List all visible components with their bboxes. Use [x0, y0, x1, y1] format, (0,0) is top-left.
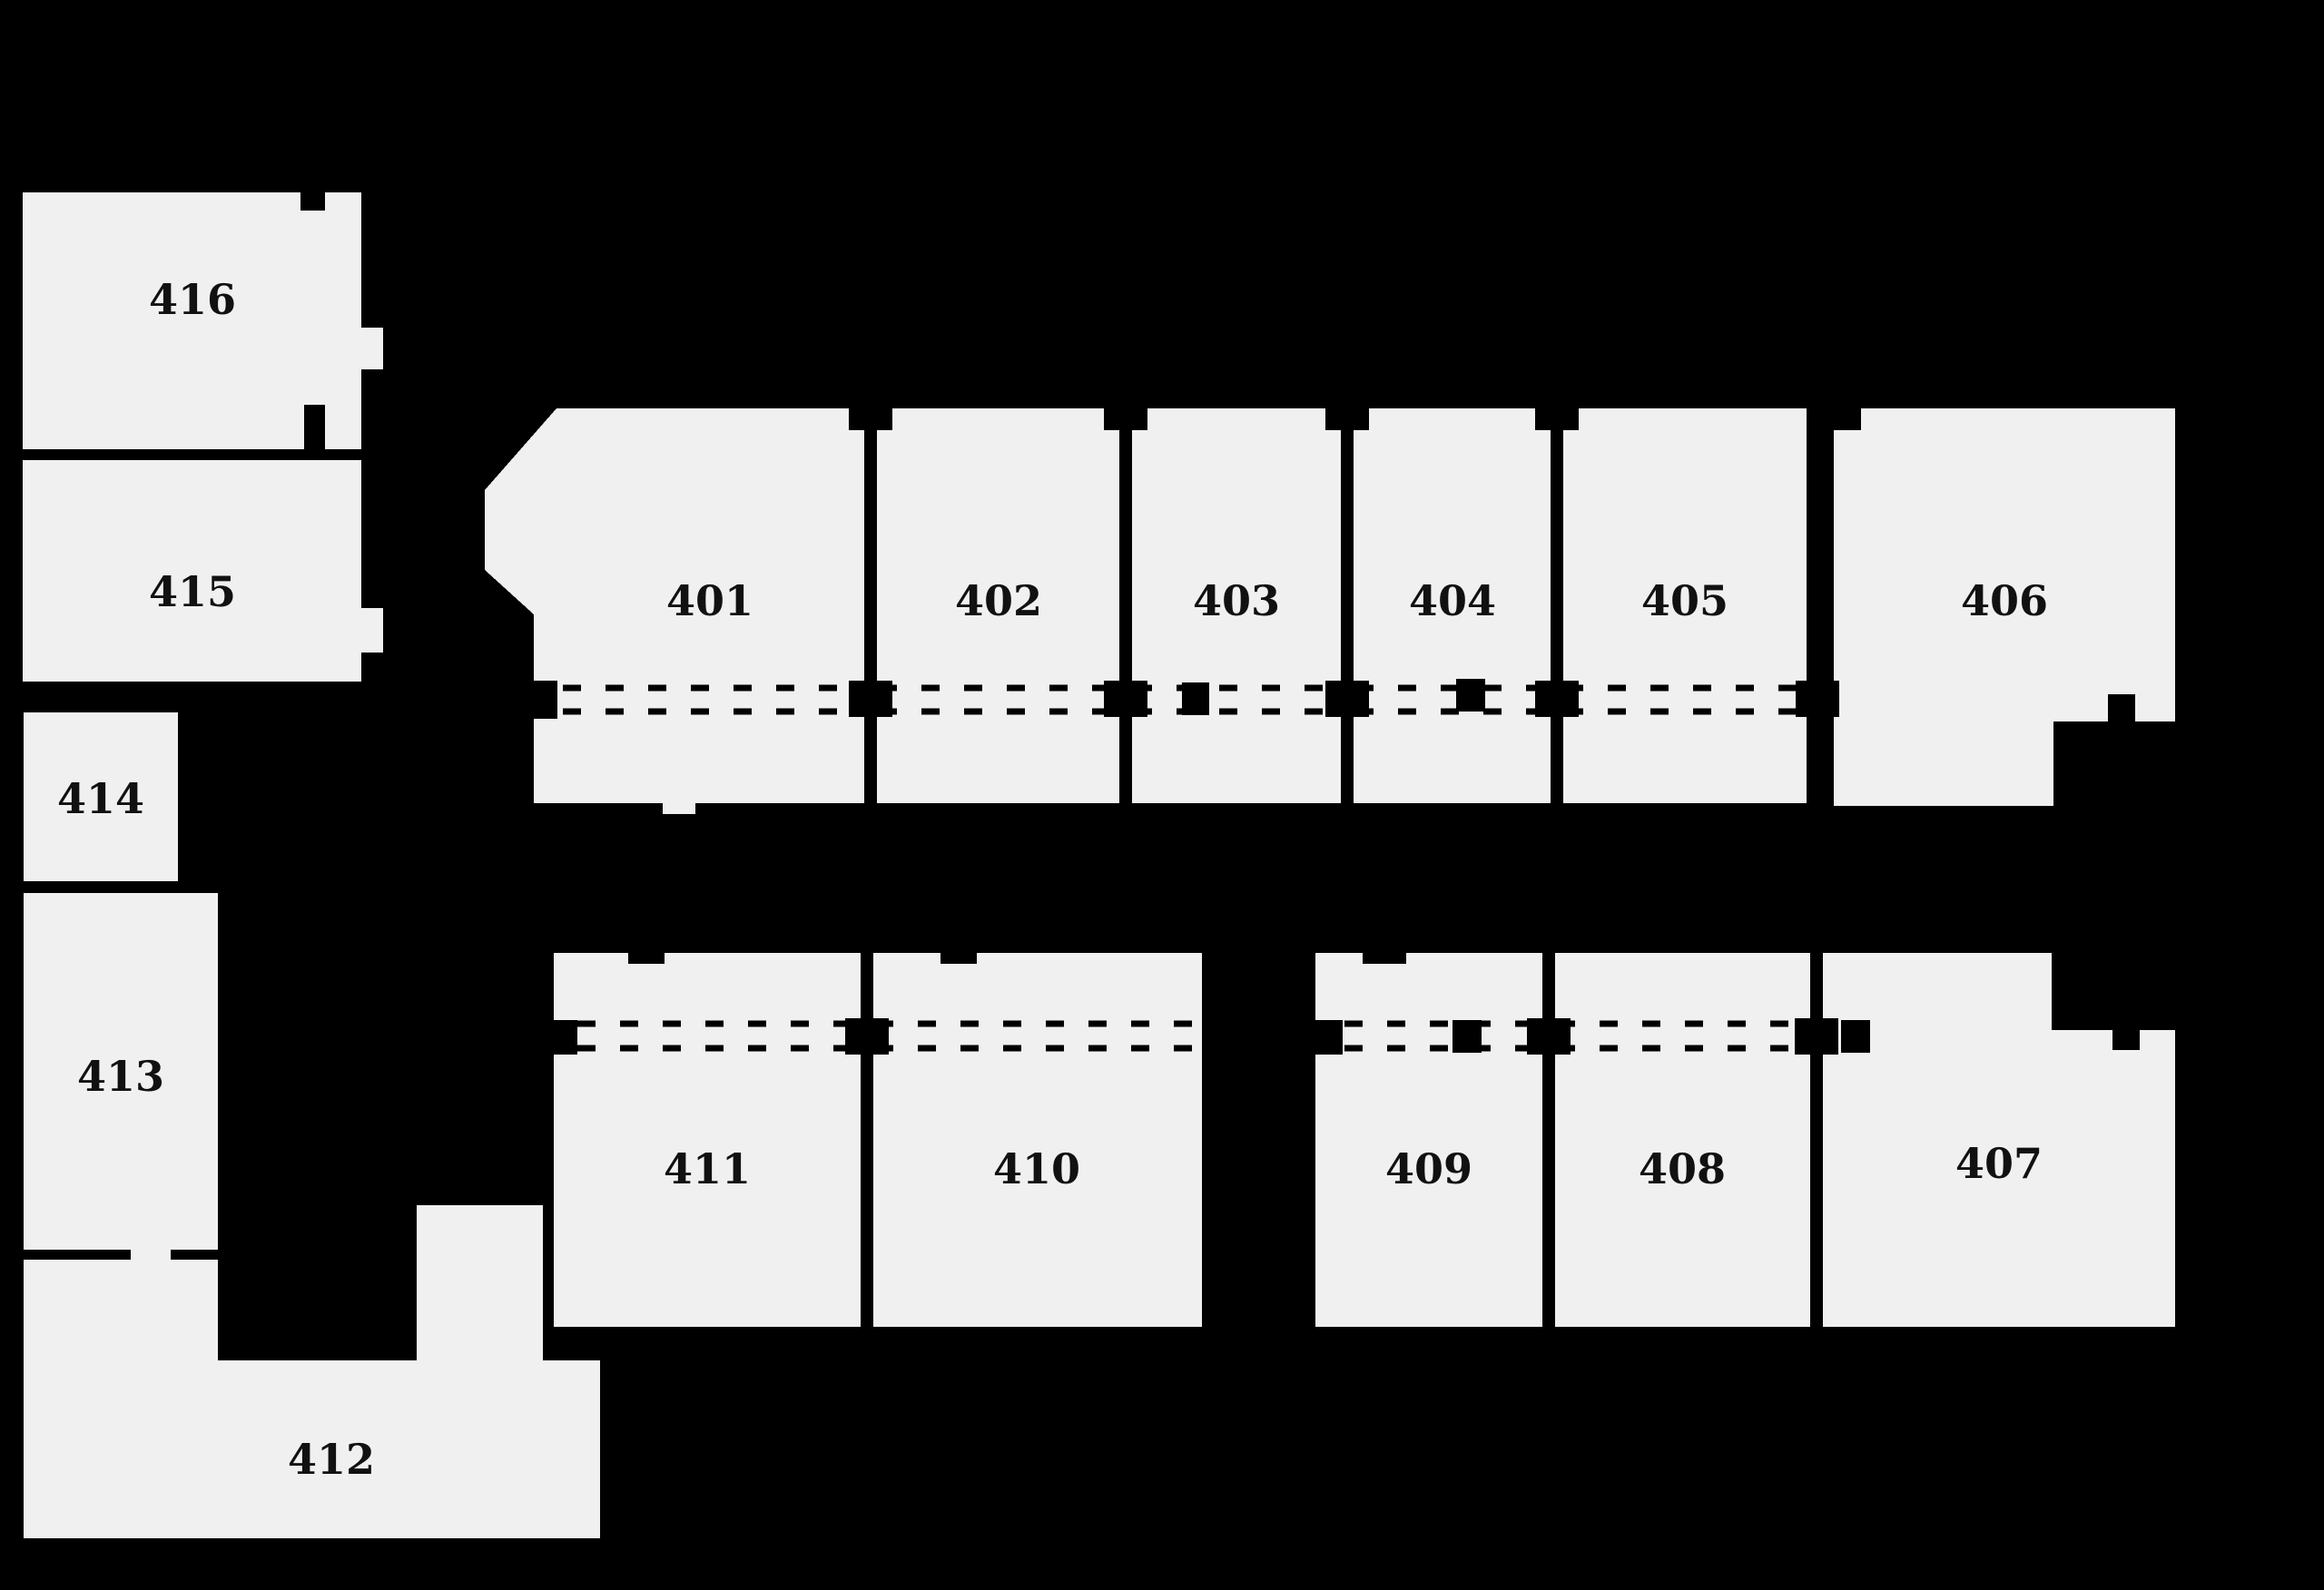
wall-stub: [940, 953, 977, 964]
room-415-label: 415: [149, 567, 236, 616]
wall-stub: [1795, 1018, 1838, 1055]
wall-stub: [554, 1020, 577, 1055]
room-405: 405: [1563, 408, 1807, 803]
room-401: 401: [485, 408, 864, 803]
room-402-label: 402: [955, 576, 1042, 625]
room-413-label: 413: [77, 1052, 164, 1101]
wall-stub: [1325, 407, 1369, 430]
room-415: 415: [23, 460, 361, 682]
room-403-label: 403: [1193, 576, 1280, 625]
wall-stub: [1315, 1020, 1343, 1055]
room-408: 408: [1555, 953, 1810, 1327]
wall-stub: [849, 681, 892, 717]
wall-stub: [628, 953, 665, 964]
wall-stub: [845, 1018, 889, 1055]
wall-stub: [1800, 1327, 1833, 1357]
room-402: 402: [877, 408, 1119, 803]
room-405-label: 405: [1641, 576, 1728, 625]
room-410-area[interactable]: [873, 953, 1202, 1327]
wall-stub: [1456, 679, 1485, 712]
wall-stub: [1535, 407, 1579, 430]
floor-plan: 4014024034044054064074084094104114124134…: [0, 0, 2324, 1590]
room-408-label: 408: [1639, 1144, 1726, 1193]
wall-stub: [2112, 1030, 2140, 1050]
room-416-label: 416: [149, 275, 236, 324]
wall-stub: [1104, 681, 1147, 717]
room-411: 411: [554, 953, 861, 1327]
wall-stub: [1796, 681, 1839, 717]
room-412-area[interactable]: [417, 1205, 543, 1538]
room-409: 409: [1315, 953, 1542, 1327]
door-opening: [131, 1249, 171, 1261]
wall-stub: [304, 405, 325, 449]
room-410-label: 410: [993, 1144, 1080, 1193]
wall-stub: [1535, 681, 1579, 717]
room-412-label: 412: [288, 1435, 375, 1484]
room-411-label: 411: [664, 1144, 751, 1193]
wall-stub: [1834, 408, 1861, 430]
wall-stub: [1527, 1018, 1571, 1055]
door-opening: [663, 803, 695, 814]
room-408-area[interactable]: [1555, 953, 1810, 1327]
wall-stub: [849, 407, 892, 430]
wall-stub: [1452, 1020, 1482, 1053]
wall-stub: [300, 192, 325, 211]
room-404-label: 404: [1409, 576, 1496, 625]
room-403: 403: [1132, 408, 1341, 803]
room-409-label: 409: [1385, 1144, 1472, 1193]
room-411-area[interactable]: [554, 953, 861, 1327]
wall-stub: [1182, 682, 1209, 715]
room-414-label: 414: [57, 774, 144, 823]
wall-stub: [851, 1327, 883, 1357]
room-404: 404: [1354, 408, 1551, 803]
room-406-label: 406: [1961, 576, 2048, 625]
room-401-label: 401: [666, 576, 753, 625]
wall-stub: [1363, 953, 1406, 964]
room-414: 414: [24, 712, 178, 881]
room-407-label: 407: [1955, 1139, 2043, 1188]
wall-stub: [1841, 1020, 1870, 1053]
wall-stub: [1532, 1327, 1565, 1357]
door-opening: [359, 608, 383, 653]
room-413: 413: [24, 893, 218, 1250]
wall-stub: [2108, 694, 2135, 722]
wall-stub: [534, 681, 557, 719]
room-409-area[interactable]: [1315, 953, 1542, 1327]
wall-stub: [1104, 407, 1147, 430]
door-opening: [359, 328, 383, 369]
room-410: 410: [873, 953, 1202, 1327]
floor-plan-svg: 4014024034044054064074084094104114124134…: [0, 0, 2324, 1590]
wall-stub: [1325, 681, 1369, 717]
